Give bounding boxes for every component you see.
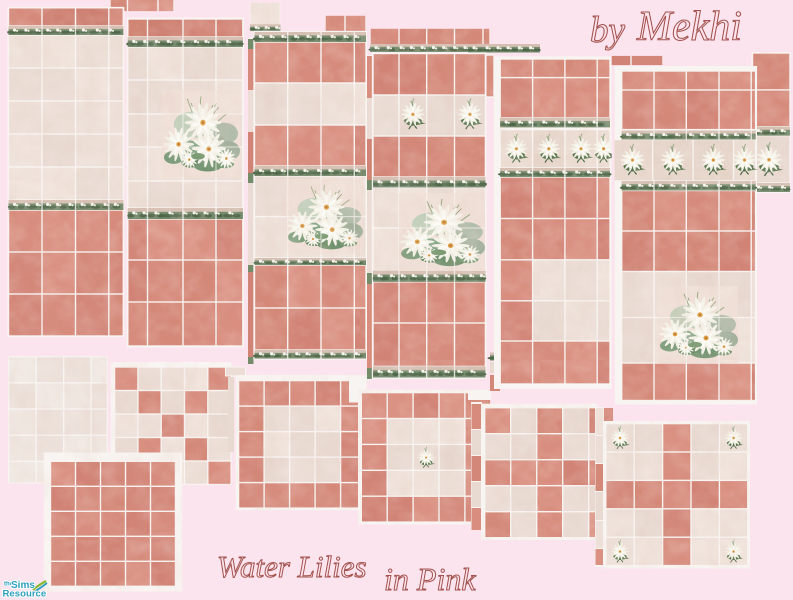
- svg-text:Resource: Resource: [3, 589, 47, 600]
- svg-text:by: by: [590, 10, 626, 51]
- svg-text:Water Lilies: Water Lilies: [217, 549, 367, 584]
- svg-text:Mekhi: Mekhi: [636, 4, 742, 50]
- svg-text:in Pink: in Pink: [384, 561, 476, 597]
